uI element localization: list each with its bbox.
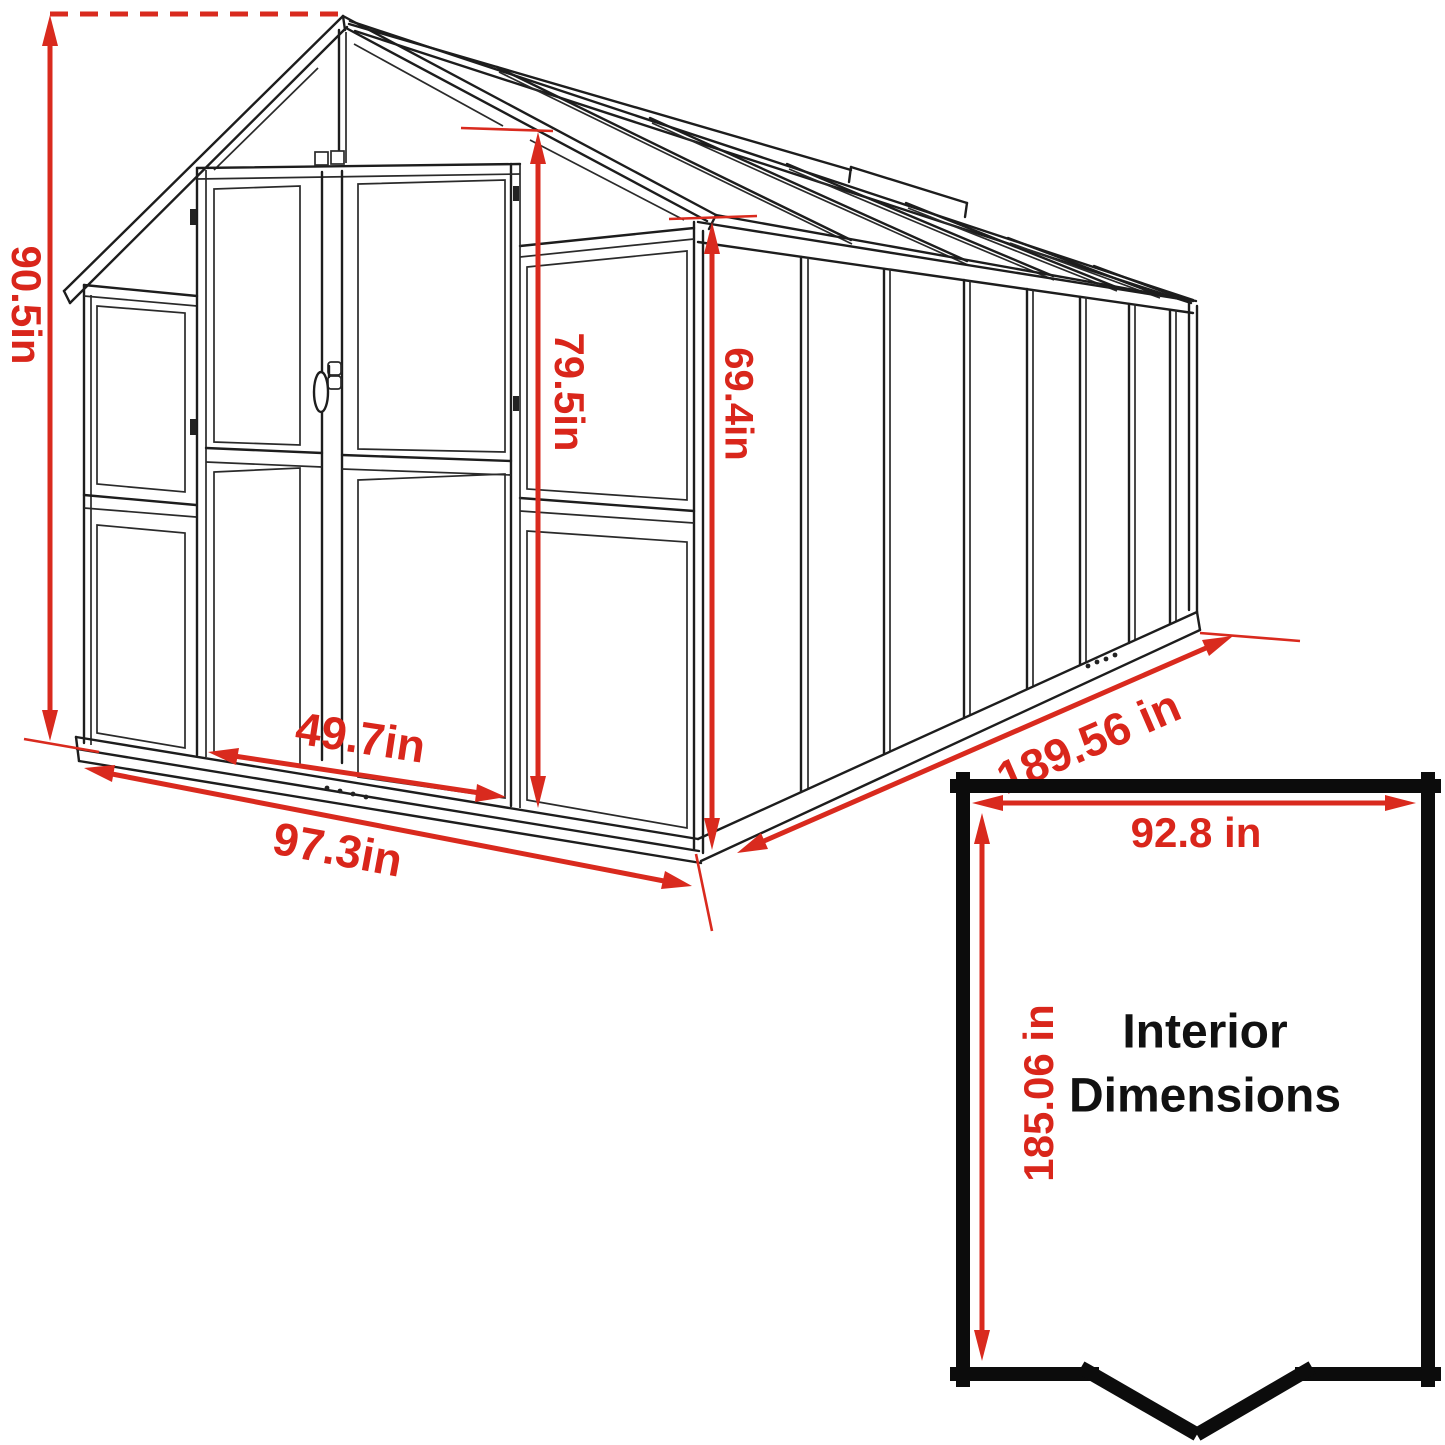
label-front-width: 97.3in [269, 812, 407, 887]
side-wall [694, 222, 1200, 861]
interior-width-dimension: 92.8 in [972, 795, 1416, 856]
label-wall-height: 69.4in [716, 347, 760, 460]
interior-title-line2: Dimensions [1069, 1070, 1341, 1123]
label-interior-depth: 185.06 in [1015, 1004, 1062, 1181]
greenhouse-dimension-diagram: 90.5in 79.5in 69.4in 49.7in 97.3in 189.5… [0, 0, 1445, 1445]
hinge-icon [513, 186, 519, 201]
double-door [190, 30, 520, 808]
diagram-canvas: 90.5in 79.5in 69.4in 49.7in 97.3in 189.5… [0, 0, 1445, 1445]
interior-dimensions-box: 92.8 in 185.06 in Interior Dimensions [957, 779, 1434, 1431]
label-door-width: 49.7in [292, 702, 429, 773]
hinge-icon [190, 419, 196, 435]
hinge-icon [190, 209, 196, 225]
label-interior-width: 92.8 in [1131, 809, 1262, 856]
hinge-icon [513, 396, 519, 411]
label-overall-height: 90.5in [3, 245, 50, 364]
dimension-wall-height: 69.4in [669, 216, 760, 850]
greenhouse-drawing [64, 16, 1200, 863]
door-handle-icon [314, 362, 341, 412]
dimension-door-width: 49.7in [208, 702, 506, 802]
interior-depth-dimension: 185.06 in [974, 813, 1062, 1361]
label-door-height: 79.5in [546, 332, 593, 451]
interior-title-line1: Interior [1122, 1006, 1287, 1059]
roof-front-gable [64, 16, 716, 303]
dimension-overall-height: 90.5in [3, 14, 340, 752]
